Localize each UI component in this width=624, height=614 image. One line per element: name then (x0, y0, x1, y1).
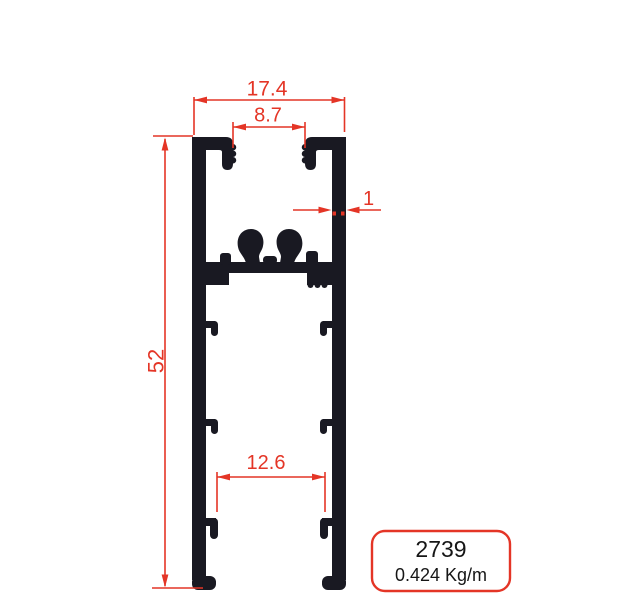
arrowhead-left (233, 124, 246, 131)
part-label-box: 2739 0.424 Kg/m (372, 531, 510, 591)
right-wall (332, 137, 346, 580)
bottom-right-foot (322, 576, 346, 590)
web-serration (308, 282, 314, 288)
arrowhead-right (319, 207, 332, 214)
arrowhead-bottom (162, 575, 169, 588)
dim-label-bottom-slot: 12.6 (247, 452, 286, 474)
wall-tick (333, 212, 337, 216)
extrusion-profile-drawing: 17.4 8.7 1 52 12.6 2 (0, 0, 624, 614)
arrowhead-top (162, 138, 169, 151)
arrowhead-left (217, 474, 230, 481)
dimension-bottom-slot: 12.6 (217, 452, 325, 512)
profile-cross-section (192, 137, 346, 590)
web-center-bump (263, 256, 277, 264)
web-left-stub (220, 253, 231, 265)
arrowhead-right (332, 97, 345, 104)
dim-label-top-slot: 8.7 (254, 105, 282, 127)
left-tab-tip (211, 321, 218, 336)
snap-hook-right (277, 229, 303, 263)
dim-label-height: 52 (144, 349, 169, 373)
snap-hook-left (238, 229, 264, 263)
bottom-left-hook-tip (210, 518, 218, 539)
arrowhead-left (194, 97, 207, 104)
arrowhead-left (347, 207, 360, 214)
left-tab-tip (211, 419, 218, 434)
profile-code: 2739 (415, 536, 466, 562)
bottom-right-hook-tip (320, 518, 328, 539)
web-serration (315, 282, 321, 288)
profile-weight: 0.424 Kg/m (395, 565, 487, 585)
arrowhead-right (292, 124, 305, 131)
web-serration (322, 282, 328, 288)
technical-drawing-page: 17.4 8.7 1 52 12.6 2 (0, 0, 624, 614)
left-wall (192, 137, 206, 580)
mid-web-left-boss (206, 262, 229, 285)
mid-web-right-boss (307, 262, 332, 285)
right-tab-tip (320, 321, 327, 336)
wall-tick (341, 212, 345, 216)
arrowhead-right (312, 474, 325, 481)
web-right-stub (306, 251, 318, 265)
dimension-top-slot: 8.7 (233, 105, 305, 149)
dim-label-wall-thickness: 1 (363, 188, 374, 210)
right-tab-tip (320, 419, 327, 434)
dim-label-top-width: 17.4 (247, 78, 288, 101)
